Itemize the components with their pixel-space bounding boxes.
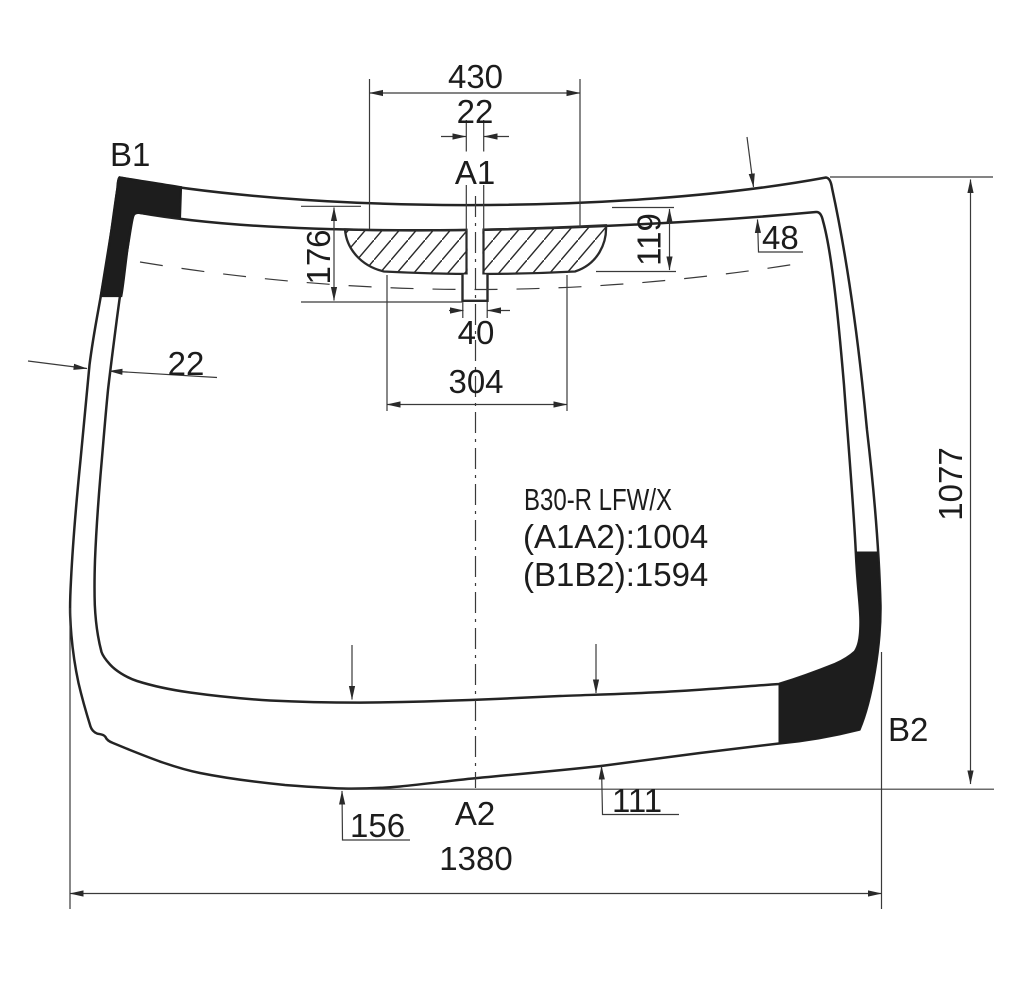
svg-text:A1: A1 [455,154,495,191]
svg-text:B1: B1 [110,136,150,173]
svg-text:119: 119 [631,213,668,266]
svg-text:A2: A2 [455,795,495,832]
svg-text:1077: 1077 [932,447,969,520]
svg-text:111: 111 [612,782,662,819]
svg-text:156: 156 [350,807,405,844]
svg-text:304: 304 [448,363,503,400]
svg-text:430: 430 [448,58,503,95]
svg-text:B2: B2 [888,711,928,748]
svg-text:1380: 1380 [439,840,512,877]
svg-text:(B1B2):1594: (B1B2):1594 [523,556,708,593]
svg-text:22: 22 [457,93,494,130]
svg-text:40: 40 [458,314,495,351]
svg-text:22: 22 [168,345,205,382]
svg-text:48: 48 [762,219,799,256]
svg-text:176: 176 [300,229,337,284]
svg-text:B30-R LFW/X: B30-R LFW/X [524,483,672,517]
svg-text:(A1A2):1004: (A1A2):1004 [523,518,708,555]
